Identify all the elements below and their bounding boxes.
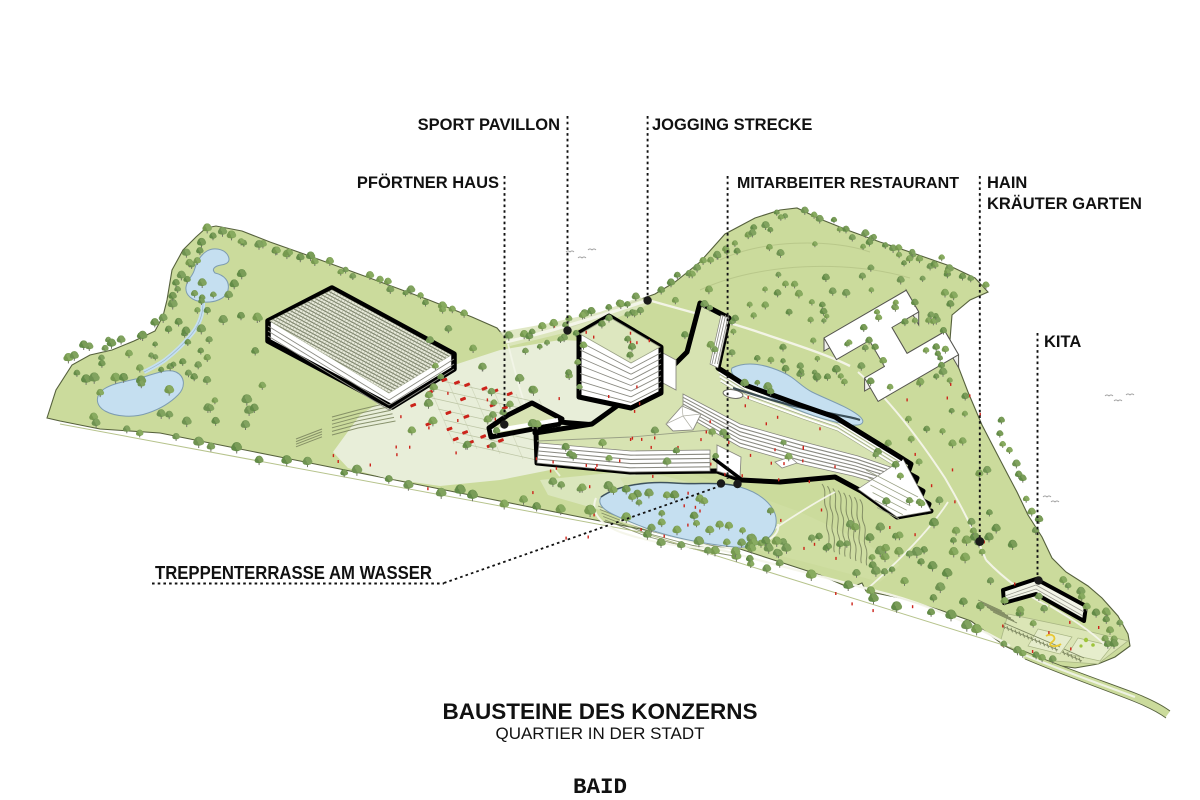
svg-text:JOGGING STRECKE: JOGGING STRECKE xyxy=(652,116,812,134)
svg-text:KITA: KITA xyxy=(1044,333,1081,351)
svg-text:SPORT PAVILLON: SPORT PAVILLON xyxy=(418,116,560,134)
svg-text:BAID: BAID xyxy=(573,774,627,800)
svg-text:QUARTIER IN DER STADT: QUARTIER IN DER STADT xyxy=(495,724,704,743)
svg-text:HAIN: HAIN xyxy=(987,174,1027,192)
svg-text:TREPPENTERRASSE AM WASSER: TREPPENTERRASSE AM WASSER xyxy=(155,563,432,583)
svg-text:PFÖRTNER HAUS: PFÖRTNER HAUS xyxy=(357,173,499,192)
svg-text:BAUSTEINE DES KONZERNS: BAUSTEINE DES KONZERNS xyxy=(442,699,757,724)
svg-text:KRÄUTER GARTEN: KRÄUTER GARTEN xyxy=(987,195,1142,213)
svg-text:MITARBEITER RESTAURANT: MITARBEITER RESTAURANT xyxy=(737,175,959,192)
